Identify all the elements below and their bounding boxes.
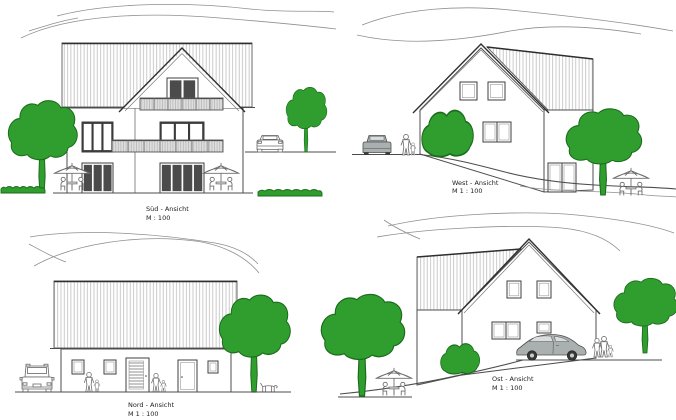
sued-terrace-door-left [82,163,113,193]
sued-view-title: Süd - Ansicht [146,205,189,213]
sued-car [257,136,283,153]
west-middle-window [483,122,511,142]
ost-gable-window-right [537,281,551,298]
terrain-contour-lines [21,4,336,38]
west-view-scale: M 1 : 100 [452,187,483,195]
west-person-adult [401,134,411,155]
sued-attic-balcony-railing [140,98,223,110]
west-gable-window-left [460,82,477,100]
ost-small-window [537,322,551,333]
ost-tree-right [614,278,676,353]
nord-view-scale: M 1 : 100 [128,410,159,418]
ost-view-title: Ost - Ansicht [492,375,534,383]
view-ost: Ost - Ansicht M 1 : 100 [321,213,676,397]
terrain-contour-lines [357,8,673,41]
ost-gable-window-left [507,281,521,298]
nord-car [20,364,54,392]
nord-roof [54,281,237,348]
nord-side-door [178,360,197,392]
elevation-sheet: Süd - Ansicht M : 100 [0,0,676,420]
view-west: West - Ansicht M 1 : 100 [352,8,676,197]
nord-window-2 [104,360,116,374]
sued-hedge-left [1,187,45,194]
ost-parasol-group [376,368,411,396]
ost-view-scale: M 1 : 100 [492,384,523,392]
nord-window-3 [208,361,218,373]
ost-middle-window [492,322,520,339]
west-view-title: West - Ansicht [452,179,499,187]
ost-tree-left [321,294,404,396]
nord-dog [261,383,278,392]
nord-house [50,281,241,392]
sued-view-scale: M : 100 [146,214,170,222]
view-sued: Süd - Ansicht M : 100 [1,4,336,222]
west-gable-window-right [488,82,505,100]
sued-upper-window-left [82,122,113,152]
sued-hedge-right [258,190,322,197]
sued-balcony-railing [112,140,223,152]
ost-person-adult-2 [599,336,609,357]
nord-window-1 [72,360,84,374]
west-car [363,136,391,156]
elevation-drawing: Süd - Ansicht M : 100 [0,0,676,420]
terrain-contour-lines [29,233,259,273]
sued-terrace-door-right [160,163,204,193]
west-parasol-group [613,168,648,196]
view-nord: Nord - Ansicht M 1 : 100 [15,233,291,418]
nord-entrance-door [126,358,149,392]
sued-tree-right [286,87,327,152]
nord-view-title: Nord - Ansicht [128,401,174,409]
west-door [548,163,576,192]
